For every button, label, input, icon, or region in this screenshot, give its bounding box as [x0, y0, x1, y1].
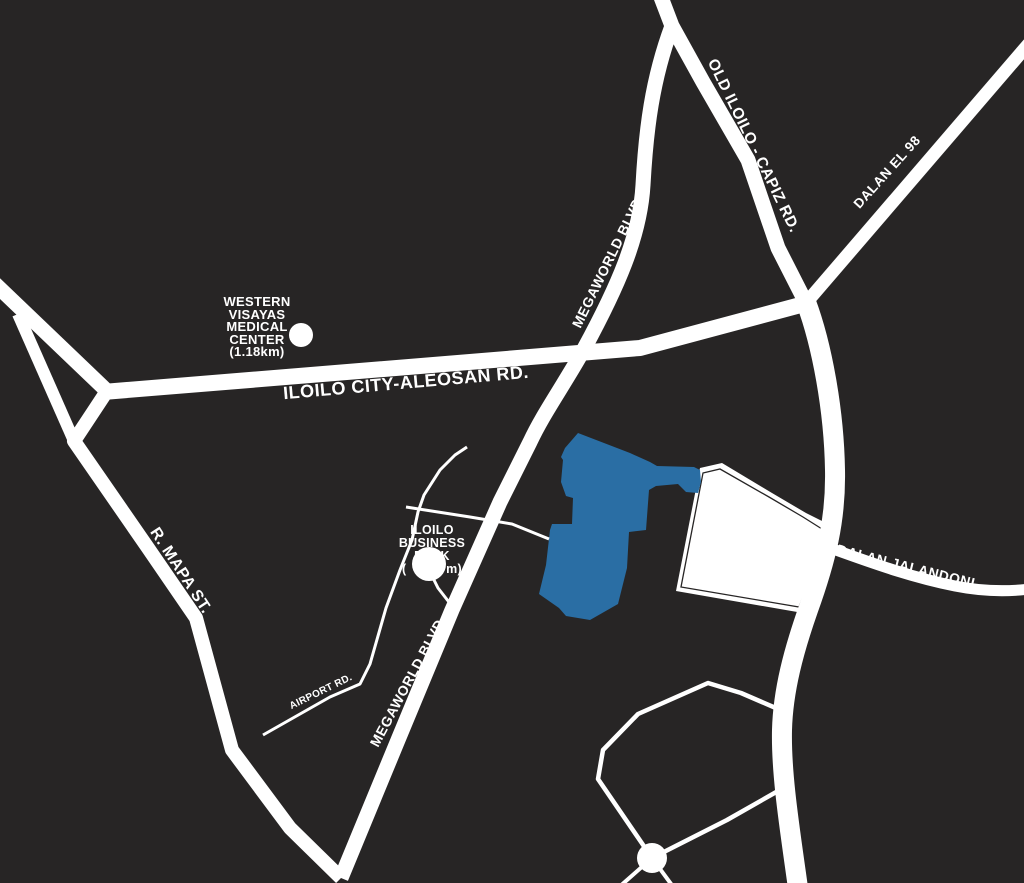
road-network: [0, 0, 1024, 883]
business-park-distance-suffix: m): [446, 563, 462, 576]
medical-center-line: (1.18km): [223, 346, 290, 359]
business-park-distance-prefix: (: [402, 563, 406, 576]
map-background: [0, 0, 1024, 883]
medical-center-label: WESTERN VISAYAS MEDICAL CENTER (1.18km): [223, 296, 290, 359]
roundabout-marker: [637, 843, 667, 873]
business-park-marker: [412, 547, 446, 581]
medical-center-marker: [289, 323, 313, 347]
map-canvas: ILOILO CITY-ALEOSAN RD. MEGAWORLD BLVD. …: [0, 0, 1024, 883]
